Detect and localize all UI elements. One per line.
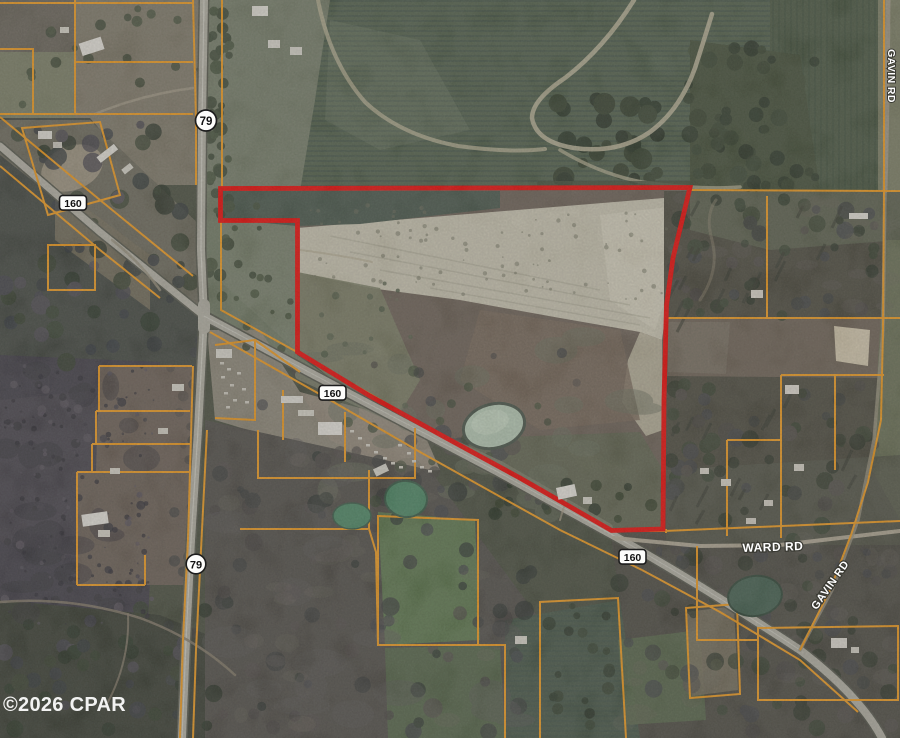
svg-text:160: 160 <box>324 388 342 400</box>
svg-text:79: 79 <box>200 116 213 128</box>
svg-text:160: 160 <box>624 552 642 564</box>
svg-text:160: 160 <box>64 198 82 210</box>
svg-text:79: 79 <box>190 559 202 571</box>
svg-text:WARD RD: WARD RD <box>742 539 803 555</box>
svg-text:GAVIN RD: GAVIN RD <box>885 49 897 103</box>
svg-text:©2026 CPAR: ©2026 CPAR <box>3 694 126 716</box>
